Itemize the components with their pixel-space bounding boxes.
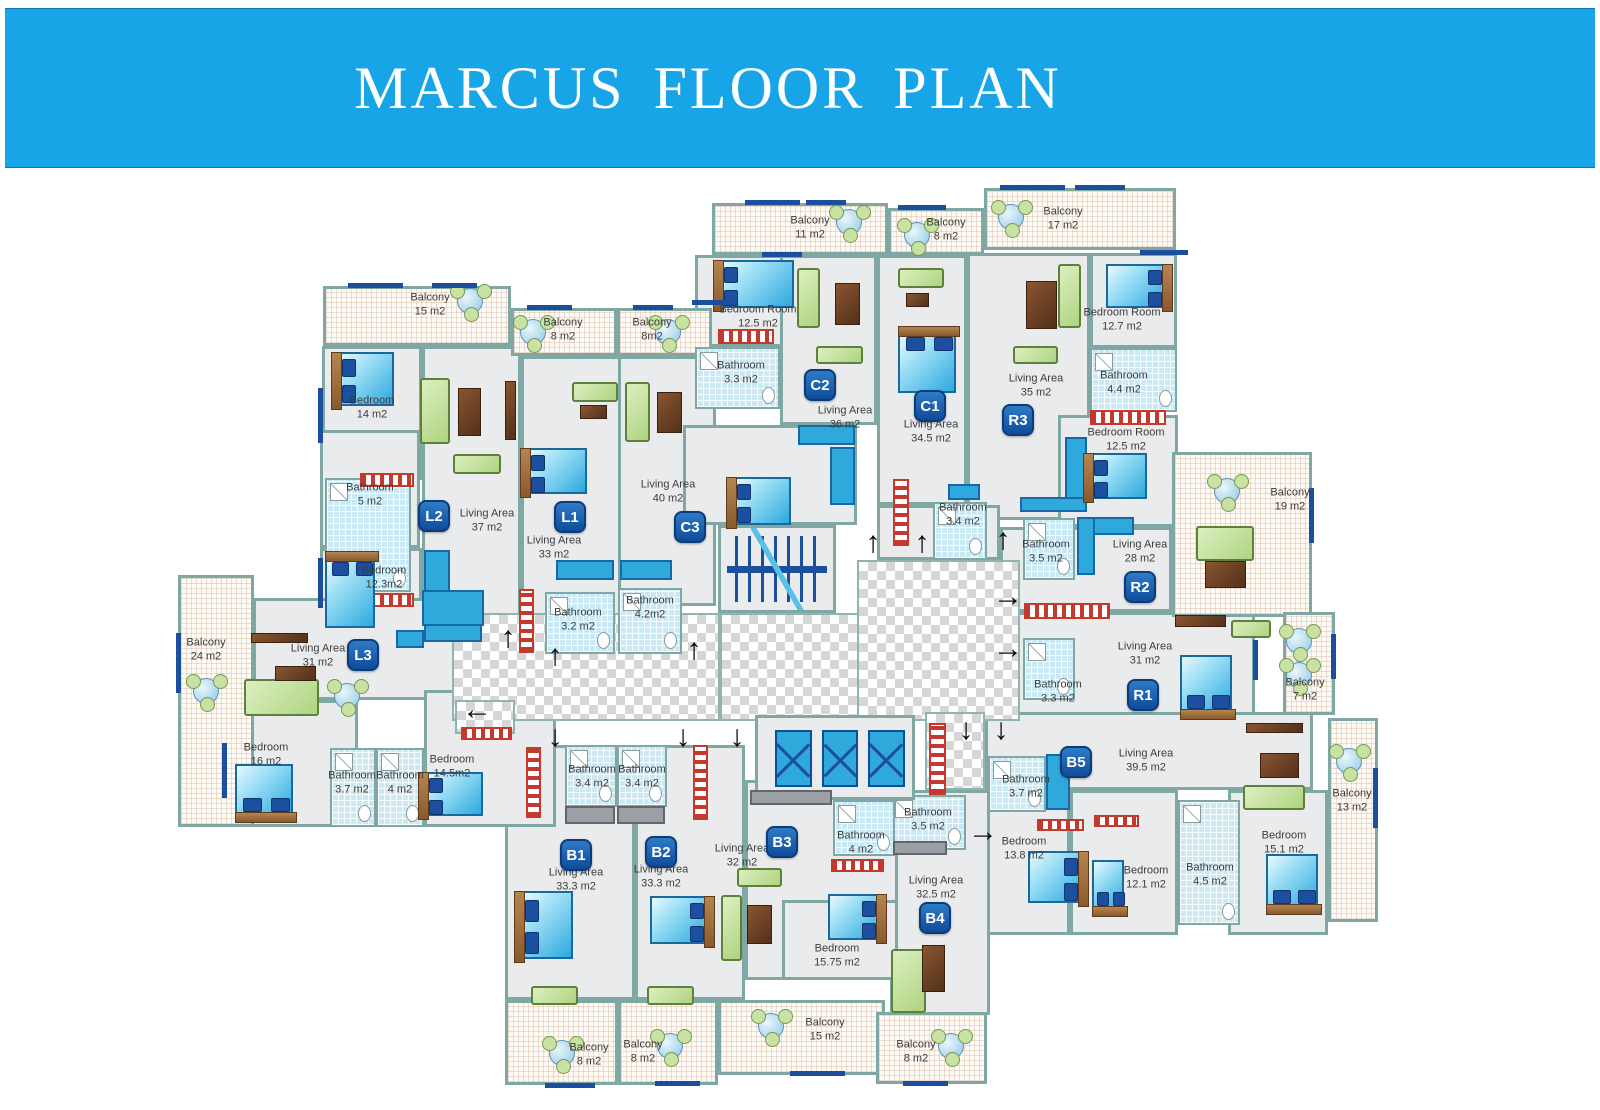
plant-leaf-icon bbox=[897, 218, 912, 233]
room-label-line: 3.7 m2 bbox=[1002, 787, 1050, 801]
room-label: Bathroom3.7 m2 bbox=[1002, 773, 1050, 802]
pillow bbox=[862, 923, 876, 939]
room-label-line: 12.3m2 bbox=[362, 578, 407, 592]
plant-leaf-icon bbox=[1329, 744, 1344, 759]
room-label-line: Living Area bbox=[1113, 538, 1167, 552]
table bbox=[835, 283, 860, 325]
room-label: Bathroom3.4 m2 bbox=[939, 501, 987, 530]
room-label: Bedroom Room12.7 m2 bbox=[1083, 306, 1160, 335]
entrance-arrow-icon: ← bbox=[462, 695, 492, 725]
plant-leaf-icon bbox=[213, 674, 228, 689]
plant-leaf-icon bbox=[354, 679, 369, 694]
room-label-line: 8m2 bbox=[632, 330, 671, 344]
room-label: Bedroom Room12.5 m2 bbox=[719, 303, 796, 332]
bed bbox=[1180, 655, 1232, 713]
wardrobe-icon bbox=[519, 589, 534, 653]
window bbox=[222, 743, 227, 798]
room-label-line: Balcony bbox=[623, 1038, 662, 1052]
sofa bbox=[572, 382, 618, 402]
plant-leaf-icon bbox=[958, 1029, 973, 1044]
plant-leaf-icon bbox=[675, 315, 690, 330]
room-label-line: 8 m2 bbox=[926, 230, 965, 244]
room-label: Bedroom12.1 m2 bbox=[1124, 864, 1169, 893]
counter bbox=[617, 806, 665, 824]
pillow bbox=[934, 337, 953, 351]
sofa bbox=[891, 949, 926, 1013]
table bbox=[1175, 615, 1226, 627]
plant-leaf-icon bbox=[186, 674, 201, 689]
room-label-line: Bedroom bbox=[430, 753, 475, 767]
room-label-line: Bedroom Room bbox=[719, 303, 796, 317]
room-label: Bedroom14 m2 bbox=[350, 394, 395, 423]
room-label: Balcony11 m2 bbox=[790, 214, 829, 243]
room-label-line: Bathroom bbox=[328, 769, 376, 783]
wardrobe-icon bbox=[1037, 819, 1084, 831]
toilet-icon bbox=[597, 632, 610, 649]
pillow bbox=[525, 900, 539, 922]
room-label-line: Living Area bbox=[460, 507, 514, 521]
room-label-line: 16 m2 bbox=[244, 755, 289, 769]
table bbox=[922, 945, 945, 992]
room-label-line: 3.3 m2 bbox=[717, 373, 765, 387]
entrance-arrow-icon: → bbox=[993, 634, 1023, 664]
room-label-line: Balcony bbox=[410, 291, 449, 305]
plant-leaf-icon bbox=[1279, 658, 1294, 673]
room-label: Balcony17 m2 bbox=[1043, 205, 1082, 234]
room-label-line: 13.8 m2 bbox=[1002, 849, 1047, 863]
pillow bbox=[342, 359, 356, 377]
room-label-line: Bathroom bbox=[1002, 773, 1050, 787]
entrance-arrow-icon: → bbox=[993, 582, 1023, 612]
room-label-line: 12.1 m2 bbox=[1124, 878, 1169, 892]
room-label: Balcony8 m2 bbox=[569, 1041, 608, 1070]
pillow bbox=[690, 926, 704, 942]
bed-headboard bbox=[325, 551, 379, 562]
room-label-line: 33.3 m2 bbox=[634, 877, 688, 891]
window bbox=[633, 305, 673, 310]
pillow bbox=[1097, 892, 1109, 906]
table bbox=[505, 381, 516, 440]
balcony-table-icon bbox=[1336, 748, 1362, 774]
plant-leaf-icon bbox=[1221, 497, 1236, 512]
pillow bbox=[1298, 890, 1316, 904]
room-label: Living Area36 m2 bbox=[818, 404, 872, 433]
room-label-line: 7 m2 bbox=[1285, 690, 1324, 704]
room-label-line: Bathroom bbox=[837, 829, 885, 843]
wardrobe-icon bbox=[461, 727, 512, 740]
plant-leaf-icon bbox=[751, 1009, 766, 1024]
room-label: Balcony8m2 bbox=[632, 316, 671, 345]
plant-leaf-icon bbox=[1293, 647, 1308, 662]
room-label-line: Balcony bbox=[805, 1016, 844, 1030]
room-label: Bathroom3.2 m2 bbox=[554, 606, 602, 635]
bed-headboard bbox=[898, 326, 960, 337]
room-label-line: Bathroom bbox=[904, 806, 952, 820]
wardrobe-icon bbox=[929, 723, 946, 795]
pillow bbox=[862, 901, 876, 917]
room-label: Balcony15 m2 bbox=[410, 291, 449, 320]
plant-leaf-icon bbox=[1306, 624, 1321, 639]
room-label-line: Bedroom bbox=[1262, 829, 1307, 843]
room-label: Living Area33 m2 bbox=[527, 534, 581, 563]
room-label-line: Bathroom bbox=[717, 359, 765, 373]
balcony-table-icon bbox=[1214, 478, 1240, 504]
room-label-line: Bathroom bbox=[376, 769, 424, 783]
unit-badge-R1: R1 bbox=[1127, 679, 1159, 711]
room-label-line: 17 m2 bbox=[1043, 219, 1082, 233]
plant-leaf-icon bbox=[1279, 624, 1294, 639]
room-label-line: 34.5 m2 bbox=[904, 432, 958, 446]
pillow bbox=[271, 798, 290, 812]
plant-leaf-icon bbox=[477, 284, 492, 299]
room-label: Living Area31 m2 bbox=[291, 642, 345, 671]
wardrobe-icon bbox=[526, 747, 541, 818]
balcony-table-icon bbox=[998, 204, 1024, 230]
room-label-line: 24 m2 bbox=[186, 650, 225, 664]
pillow bbox=[243, 798, 262, 812]
bed-headboard bbox=[235, 812, 297, 823]
pillow bbox=[1094, 482, 1108, 498]
room-label: Bedroom12.3m2 bbox=[362, 564, 407, 593]
room-label: Bedroom13.8 m2 bbox=[1002, 835, 1047, 864]
room-label: Bathroom3.3 m2 bbox=[717, 359, 765, 388]
unit-badge-B5: B5 bbox=[1060, 746, 1092, 778]
room-label-line: Living Area bbox=[818, 404, 872, 418]
room-label-line: Living Area bbox=[715, 842, 769, 856]
counter bbox=[750, 790, 832, 805]
shower-icon bbox=[1183, 805, 1201, 823]
room-label-line: 32.5 m2 bbox=[909, 888, 963, 902]
room-label-line: 8 m2 bbox=[569, 1055, 608, 1069]
window bbox=[790, 1071, 845, 1076]
pillow bbox=[724, 267, 738, 283]
entrance-arrow-icon: → bbox=[968, 817, 998, 847]
unit-badge-L2: L2 bbox=[418, 500, 450, 532]
room-label-line: Balcony bbox=[790, 214, 829, 228]
toilet-icon bbox=[969, 538, 982, 555]
room-label: Balcony19 m2 bbox=[1270, 486, 1309, 515]
pillow bbox=[1064, 858, 1078, 876]
room-label-line: Bedroom bbox=[1124, 864, 1169, 878]
room-label-line: Bathroom bbox=[1022, 538, 1070, 552]
unit-badge-C1: C1 bbox=[914, 390, 946, 422]
window bbox=[903, 1081, 948, 1086]
window bbox=[527, 305, 572, 310]
table bbox=[1205, 561, 1246, 588]
room-label-line: Balcony bbox=[569, 1041, 608, 1055]
room-label: Balcony15 m2 bbox=[805, 1016, 844, 1045]
room-label-line: Living Area bbox=[1119, 747, 1173, 761]
room-label-line: 28 m2 bbox=[1113, 552, 1167, 566]
bed-headboard bbox=[1266, 904, 1322, 915]
pillow bbox=[906, 337, 925, 351]
unit-badge-R2: R2 bbox=[1124, 571, 1156, 603]
room-label-line: 35 m2 bbox=[1009, 386, 1063, 400]
wardrobe-icon bbox=[693, 745, 708, 820]
floor-plan: ↑↑↑↑↑↑↓↓↓↓↓→→→←Balcony15 m2Balcony8 m2Ba… bbox=[0, 0, 1600, 1110]
room-label: Balcony8 m2 bbox=[623, 1038, 662, 1067]
bed bbox=[828, 894, 880, 940]
plant-leaf-icon bbox=[1018, 200, 1033, 215]
unit-badge-C2: C2 bbox=[804, 369, 836, 401]
room-label-line: Balcony bbox=[186, 636, 225, 650]
room-label-line: Bedroom bbox=[350, 394, 395, 408]
room-label-line: 12.5 m2 bbox=[1087, 440, 1164, 454]
room-label: Bathroom5 m2 bbox=[346, 481, 394, 510]
room-label-line: Bedroom bbox=[362, 564, 407, 578]
room-label-line: 3.5 m2 bbox=[904, 820, 952, 834]
sofa bbox=[797, 268, 820, 328]
plant-leaf-icon bbox=[341, 702, 356, 717]
elevator-car bbox=[868, 730, 905, 787]
table bbox=[1026, 281, 1057, 329]
counter bbox=[565, 806, 615, 824]
sofa bbox=[1058, 264, 1081, 328]
unit-badge-B4: B4 bbox=[919, 902, 951, 934]
room-label-line: 8 m2 bbox=[623, 1052, 662, 1066]
plant-leaf-icon bbox=[513, 315, 528, 330]
room-label: Living Area37 m2 bbox=[460, 507, 514, 536]
pillow bbox=[690, 903, 704, 919]
plant-leaf-icon bbox=[200, 697, 215, 712]
room-label-line: 37 m2 bbox=[460, 521, 514, 535]
plant-leaf-icon bbox=[1306, 658, 1321, 673]
room-label-line: Bedroom Room bbox=[1087, 426, 1164, 440]
table bbox=[1246, 723, 1303, 733]
plant-leaf-icon bbox=[991, 200, 1006, 215]
room-label-line: Bathroom bbox=[939, 501, 987, 515]
pillow bbox=[1064, 883, 1078, 901]
plant-leaf-icon bbox=[843, 228, 858, 243]
bed-headboard bbox=[704, 896, 715, 948]
window bbox=[318, 388, 323, 443]
toilet-icon bbox=[1159, 390, 1172, 407]
room-label-line: 15 m2 bbox=[805, 1030, 844, 1044]
room-label-line: 4.5 m2 bbox=[1186, 875, 1234, 889]
room-label-line: 3.2 m2 bbox=[554, 620, 602, 634]
room-label-line: 14 m2 bbox=[350, 408, 395, 422]
table bbox=[1260, 753, 1299, 778]
room-label-line: Balcony bbox=[1285, 676, 1324, 690]
room-label-line: Bathroom bbox=[346, 481, 394, 495]
room-label: Bedroom Room12.5 m2 bbox=[1087, 426, 1164, 455]
plant-leaf-icon bbox=[765, 1032, 780, 1047]
room-label-line: Bathroom bbox=[568, 763, 616, 777]
plant-leaf-icon bbox=[1234, 474, 1249, 489]
sofa bbox=[647, 986, 694, 1005]
window bbox=[806, 200, 846, 205]
bed bbox=[1092, 860, 1124, 910]
unit-badge-C3: C3 bbox=[674, 511, 706, 543]
room-label-line: 12.5 m2 bbox=[719, 317, 796, 331]
plant-leaf-icon bbox=[527, 338, 542, 353]
window bbox=[762, 252, 802, 257]
elevator-car bbox=[775, 730, 812, 787]
wardrobe-icon bbox=[1094, 815, 1139, 827]
pillow bbox=[1148, 270, 1162, 285]
entrance-arrow-icon: ↑ bbox=[501, 623, 516, 653]
room-label-line: 15 m2 bbox=[410, 305, 449, 319]
room-label: Balcony8 m2 bbox=[543, 316, 582, 345]
plant-leaf-icon bbox=[945, 1052, 960, 1067]
room-label-line: Balcony bbox=[1270, 486, 1309, 500]
window bbox=[1373, 768, 1378, 828]
bed bbox=[1090, 453, 1147, 499]
room-label-line: Balcony bbox=[543, 316, 582, 330]
shower-icon bbox=[838, 805, 856, 823]
room-label-line: 15.75 m2 bbox=[814, 956, 860, 970]
bed-headboard bbox=[1078, 851, 1089, 907]
window bbox=[545, 1083, 595, 1088]
stairs-diag bbox=[721, 528, 833, 610]
room-label-line: 4 m2 bbox=[376, 783, 424, 797]
sofa bbox=[1196, 526, 1254, 561]
bed-headboard bbox=[1162, 264, 1173, 312]
room-label-line: Bathroom bbox=[626, 594, 674, 608]
entrance-arrow-icon: ↓ bbox=[959, 715, 974, 745]
room-label-line: Bedroom bbox=[244, 741, 289, 755]
toilet-icon bbox=[664, 632, 677, 649]
window bbox=[1331, 634, 1336, 679]
plant-leaf-icon bbox=[1343, 767, 1358, 782]
room-label: Bathroom3.4 m2 bbox=[568, 763, 616, 792]
entrance-arrow-icon: ↓ bbox=[994, 715, 1009, 745]
sofa bbox=[1013, 346, 1058, 364]
bed-headboard bbox=[726, 477, 737, 529]
room-label-line: 4.4 m2 bbox=[1100, 383, 1148, 397]
kitchen-counter bbox=[1077, 517, 1095, 575]
plant-leaf-icon bbox=[1005, 223, 1020, 238]
sofa bbox=[1243, 785, 1305, 810]
entrance-arrow-icon: ↑ bbox=[915, 528, 930, 558]
room-label-line: 3.4 m2 bbox=[568, 777, 616, 791]
stairs bbox=[718, 525, 836, 613]
room-label-line: 12.7 m2 bbox=[1083, 320, 1160, 334]
balcony-table-icon bbox=[520, 319, 546, 345]
balcony-table-icon bbox=[938, 1033, 964, 1059]
table bbox=[747, 905, 772, 944]
plant-leaf-icon bbox=[829, 205, 844, 220]
room-label-line: Bedroom Room bbox=[1083, 306, 1160, 320]
room-label-line: 36 m2 bbox=[818, 418, 872, 432]
kitchen-counter bbox=[948, 484, 980, 500]
kitchen-counter bbox=[1020, 497, 1087, 512]
room-label: Living Area32 m2 bbox=[715, 842, 769, 871]
sofa bbox=[721, 895, 742, 961]
room-label: Balcony7 m2 bbox=[1285, 676, 1324, 705]
table bbox=[906, 293, 929, 307]
bed bbox=[1106, 264, 1166, 308]
room-label-line: 39.5 m2 bbox=[1119, 761, 1173, 775]
room-label: Bathroom3.4 m2 bbox=[618, 763, 666, 792]
balcony-table-icon bbox=[457, 288, 483, 314]
balcony-table-icon bbox=[193, 678, 219, 704]
room-label-line: 3.7 m2 bbox=[328, 783, 376, 797]
bed-headboard bbox=[520, 448, 531, 498]
room-label: Living Area35 m2 bbox=[1009, 372, 1063, 401]
room-label-line: 15.1 m2 bbox=[1262, 843, 1307, 857]
window bbox=[1253, 640, 1258, 680]
kitchen-counter bbox=[396, 630, 424, 648]
pillow bbox=[737, 484, 751, 500]
toilet-icon bbox=[1222, 903, 1235, 920]
room-label: Bedroom14.5m2 bbox=[430, 753, 475, 782]
balcony-table-icon bbox=[334, 683, 360, 709]
room-label-line: 3.3 m2 bbox=[1034, 692, 1082, 706]
sofa bbox=[898, 268, 944, 288]
pillow bbox=[1187, 695, 1205, 709]
room-label-line: Balcony bbox=[1332, 787, 1371, 801]
room-label: Bathroom4.4 m2 bbox=[1100, 369, 1148, 398]
room-label: Living Area28 m2 bbox=[1113, 538, 1167, 567]
entrance-arrow-icon: ↑ bbox=[548, 641, 563, 671]
kitchen-counter bbox=[620, 560, 672, 580]
unit-badge-B3: B3 bbox=[766, 826, 798, 858]
room-label-line: Living Area bbox=[527, 534, 581, 548]
room-label-line: Bedroom bbox=[1002, 835, 1047, 849]
pillow bbox=[525, 932, 539, 954]
sofa bbox=[244, 679, 319, 716]
wardrobe-icon bbox=[1090, 410, 1166, 425]
room-label: Bedroom15.1 m2 bbox=[1262, 829, 1307, 858]
sofa bbox=[453, 454, 501, 474]
window bbox=[176, 633, 181, 693]
pillow bbox=[1273, 890, 1291, 904]
unit-badge-L1: L1 bbox=[554, 501, 586, 533]
room-label-line: 3.4 m2 bbox=[939, 515, 987, 529]
wardrobe-icon bbox=[893, 479, 909, 546]
entrance-arrow-icon: ↓ bbox=[730, 722, 745, 752]
counter bbox=[893, 841, 947, 855]
bed bbox=[521, 891, 573, 959]
room-label-line: 31 m2 bbox=[291, 656, 345, 670]
bed-headboard bbox=[1083, 453, 1094, 503]
entrance-arrow-icon: ↑ bbox=[687, 635, 702, 665]
wardrobe-icon bbox=[1024, 603, 1110, 619]
room-label: Bathroom4 m2 bbox=[837, 829, 885, 858]
room-label: Living Area40 m2 bbox=[641, 478, 695, 507]
window bbox=[1309, 488, 1314, 543]
bed bbox=[1266, 854, 1318, 908]
entrance-arrow-icon: ↑ bbox=[866, 528, 881, 558]
room-label-line: 5 m2 bbox=[346, 495, 394, 509]
room-label-line: 4 m2 bbox=[837, 843, 885, 857]
unit-badge-L3: L3 bbox=[347, 639, 379, 671]
plant-leaf-icon bbox=[1207, 474, 1222, 489]
room-label: Bathroom4.5 m2 bbox=[1186, 861, 1234, 890]
sofa bbox=[625, 382, 650, 442]
plant-leaf-icon bbox=[327, 679, 342, 694]
balcony-table-icon bbox=[836, 209, 862, 235]
room-label-line: 11 m2 bbox=[790, 228, 829, 242]
sofa bbox=[531, 986, 578, 1005]
room-label-line: Bathroom bbox=[1186, 861, 1234, 875]
unit-badge-B1: B1 bbox=[560, 839, 592, 871]
pillow bbox=[429, 800, 443, 815]
entrance-arrow-icon: ↓ bbox=[548, 722, 563, 752]
entrance-arrow-icon: ↓ bbox=[676, 722, 691, 752]
room-label-line: 3.4 m2 bbox=[618, 777, 666, 791]
room-label: Balcony8 m2 bbox=[896, 1038, 935, 1067]
kitchen-counter bbox=[556, 560, 614, 580]
room-label-line: Living Area bbox=[641, 478, 695, 492]
plant-leaf-icon bbox=[911, 241, 926, 256]
unit-badge-B2: B2 bbox=[645, 836, 677, 868]
plant-leaf-icon bbox=[664, 1052, 679, 1067]
pillow bbox=[531, 477, 545, 493]
bed bbox=[235, 764, 293, 816]
pillow bbox=[332, 562, 349, 576]
